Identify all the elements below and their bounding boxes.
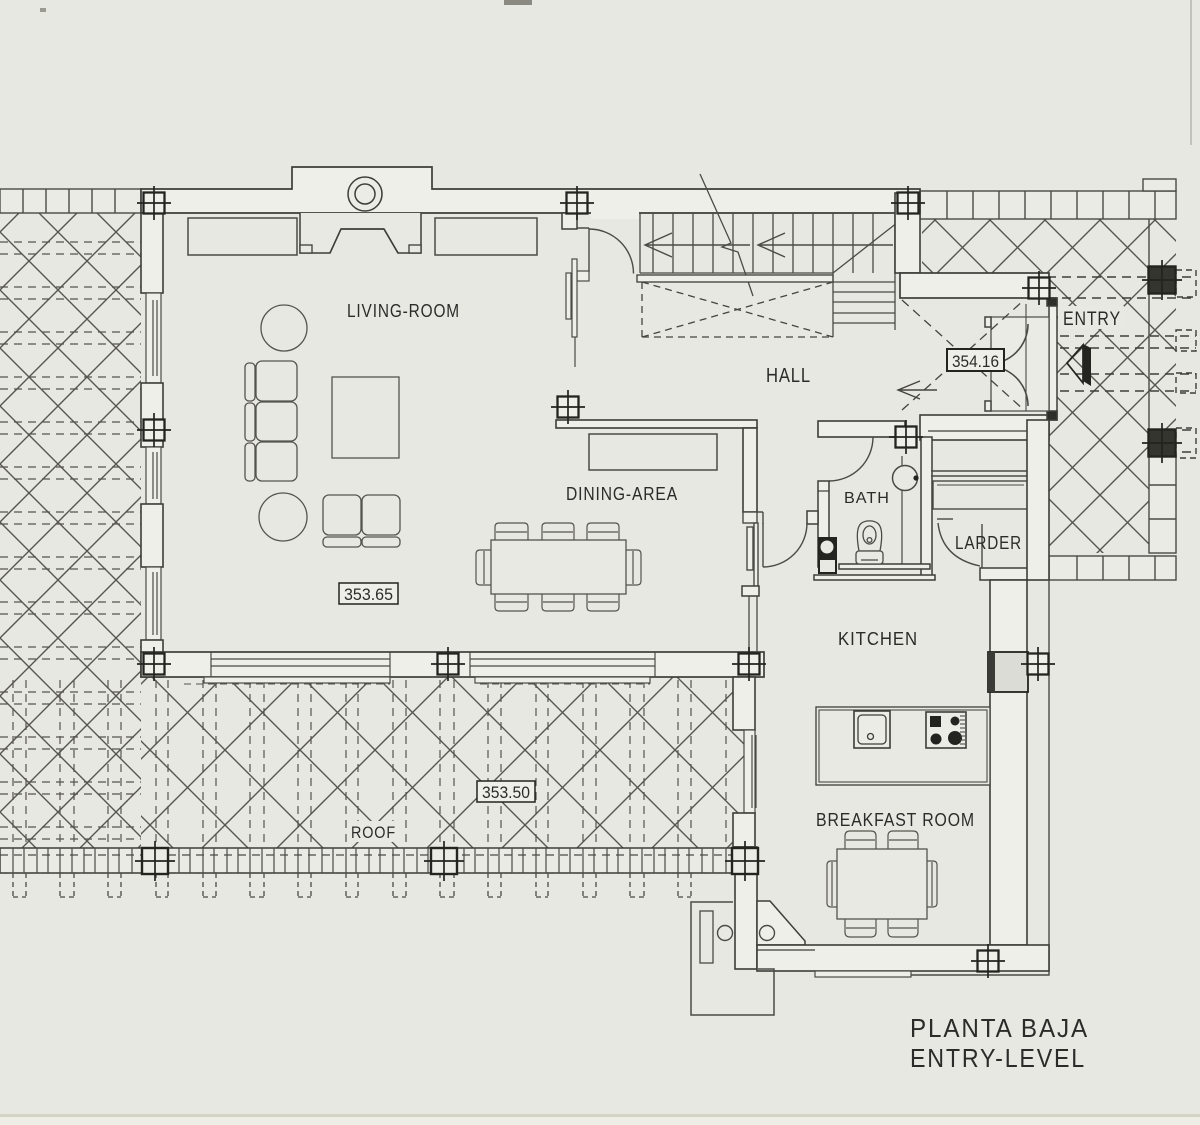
- svg-text:ROOF: ROOF: [351, 823, 396, 842]
- svg-text:DINING-AREA: DINING-AREA: [566, 484, 678, 504]
- svg-text:ENTRY: ENTRY: [1063, 309, 1121, 330]
- svg-text:BREAKFAST ROOM: BREAKFAST ROOM: [816, 810, 975, 830]
- svg-text:HALL: HALL: [766, 365, 811, 387]
- svg-text:ENTRY-LEVEL: ENTRY-LEVEL: [910, 1043, 1086, 1073]
- svg-text:BATH: BATH: [844, 490, 890, 507]
- svg-text:LARDER: LARDER: [955, 533, 1022, 553]
- svg-text:353.65: 353.65: [344, 585, 393, 604]
- svg-text:PLANTA BAJA: PLANTA BAJA: [910, 1013, 1089, 1043]
- svg-text:353.50: 353.50: [482, 783, 530, 802]
- svg-text:KITCHEN: KITCHEN: [838, 629, 918, 649]
- svg-text:354.16: 354.16: [952, 352, 999, 371]
- svg-text:LIVING-ROOM: LIVING-ROOM: [347, 301, 460, 321]
